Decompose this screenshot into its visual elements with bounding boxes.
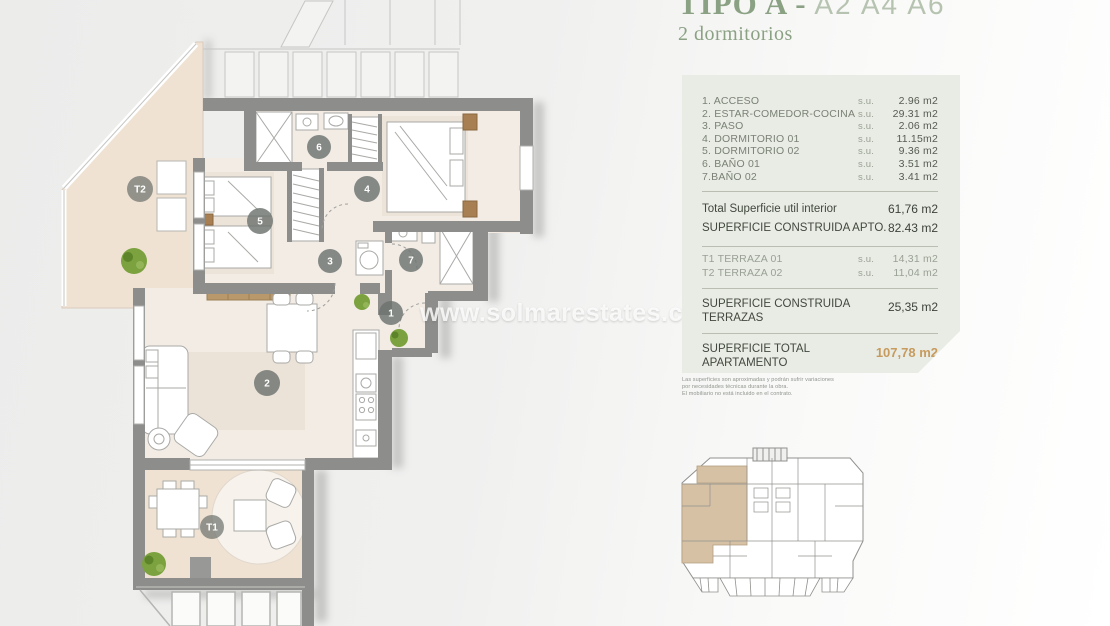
surface-summary-panel: 1. ACCESOs.u.2.96 m2 2. ESTAR-COMEDOR-CO… (682, 75, 960, 373)
terraza-row: T1 TERRAZA 01s.u.14,31 m2 (702, 253, 938, 267)
room-list: 1. ACCESOs.u.2.96 m2 2. ESTAR-COMEDOR-CO… (702, 95, 938, 183)
svg-text:T2: T2 (134, 185, 146, 196)
room-row: 7.BAÑO 02s.u.3.41 m2 (702, 171, 938, 184)
divider (702, 246, 938, 247)
room-row: 6. BAÑO 01s.u.3.51 m2 (702, 158, 938, 171)
keyplan-balconies (693, 578, 853, 596)
construida-apto-row: SUPERFICIE CONSTRUIDA APTO. 82.43 m2 (702, 219, 938, 238)
pergola-structure (203, 0, 460, 97)
terraza-row: T2 TERRAZA 02s.u.11,04 m2 (702, 267, 938, 281)
divider (702, 288, 938, 289)
marker-paso: 3 (318, 249, 342, 273)
disclaimer: Las superficies son aproximadas y podrán… (682, 377, 834, 398)
total-util-row: Total Superficie util interior 61,76 m2 (702, 200, 938, 219)
marker-dorm2: 5 (247, 208, 273, 234)
plant-entry (390, 329, 408, 347)
room-row: 5. DORMITORIO 02s.u.9.36 m2 (702, 145, 938, 158)
total-apartamento-row: SUPERFICIE TOTAL APARTAMENTO 107,78 m2 (702, 343, 938, 370)
divider (702, 191, 938, 192)
page-subtitle: 2 dormitorios (678, 23, 946, 46)
plant-terrace-t1 (142, 552, 166, 576)
svg-text:T1: T1 (206, 523, 218, 534)
svg-text:3: 3 (327, 257, 333, 268)
marker-acceso: 1 (379, 301, 403, 325)
marker-bano2: 7 (399, 248, 423, 272)
plant-living (354, 294, 370, 310)
divider (702, 333, 938, 334)
bedroom-01-furniture (382, 114, 477, 217)
marker-bano1: 6 (307, 135, 331, 159)
page-title: TIPO A - (678, 0, 807, 21)
svg-text:6: 6 (316, 143, 322, 154)
marker-estar: 2 (254, 370, 280, 396)
kitchen-counter (353, 330, 379, 458)
construida-terrazas-row: SUPERFICIE CONSTRUIDA TERRAZAS 25,35 m2 (702, 298, 938, 325)
header: TIPO A - A2 A4 A6 2 dormitorios (678, 0, 946, 46)
room-row: 1. ACCESOs.u.2.96 m2 (702, 95, 938, 108)
terraza-list: T1 TERRAZA 01s.u.14,31 m2 T2 TERRAZA 02s… (702, 253, 938, 280)
marker-terraza1: T1 (200, 515, 224, 539)
svg-text:4: 4 (364, 185, 370, 196)
floorplan-page: { "colors":{"accent_green":"#8ba184","ac… (0, 0, 1110, 626)
building-key-plan (650, 446, 960, 626)
room-row: 2. ESTAR-COMEDOR-COCINAs.u.29.31 m2 (702, 108, 938, 121)
svg-text:7: 7 (408, 256, 414, 267)
total-value: 107,78 m2 (876, 343, 938, 362)
apartment-floorplan: 1 2 3 4 5 6 7 T1 T2 (0, 0, 670, 626)
marker-terraza2: T2 (127, 176, 153, 202)
svg-text:5: 5 (257, 217, 263, 228)
unit-codes: A2 A4 A6 (814, 0, 945, 20)
room-row: 4. DORMITORIO 01s.u.11.15m2 (702, 133, 938, 146)
svg-text:1: 1 (388, 309, 394, 320)
svg-text:2: 2 (264, 379, 270, 390)
marker-dorm1: 4 (354, 176, 380, 202)
room-row: 3. PASOs.u.2.06 m2 (702, 120, 938, 133)
plant-terrace-t2 (121, 248, 147, 274)
